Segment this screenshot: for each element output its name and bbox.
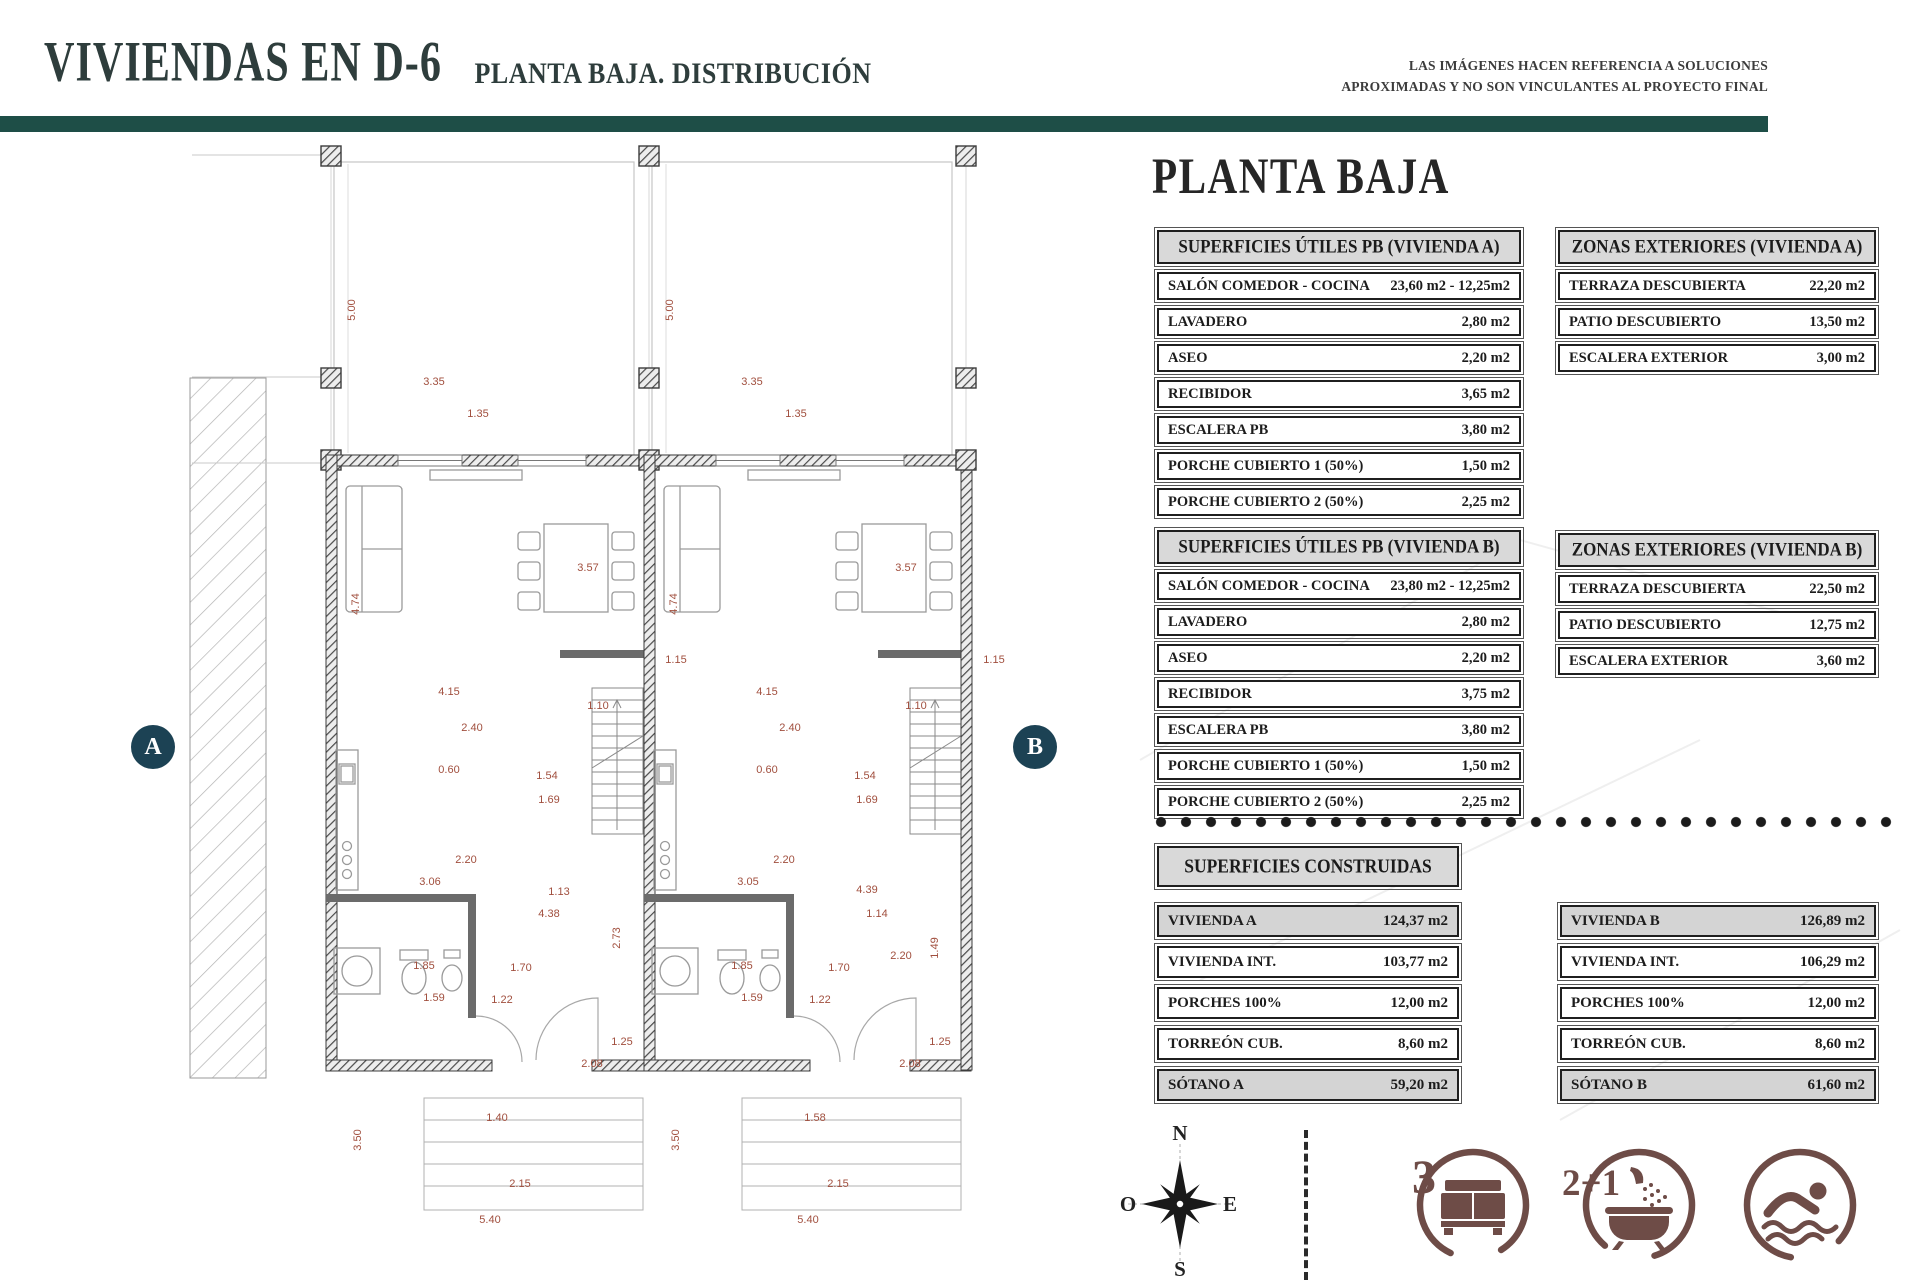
header: VIVIENDAS EN D-6 PLANTA BAJA. DISTRIBUCI… [44, 44, 872, 95]
table-header: ZONAS EXTERIORES (VIVIENDA A) [1558, 230, 1876, 264]
row-label: SALÓN COMEDOR - COCINA [1168, 578, 1370, 595]
table-row: LAVADERO2,80 m2 [1157, 308, 1521, 336]
dimension-label: 1.40 [486, 1112, 507, 1124]
row-value: 2,80 m2 [1462, 314, 1510, 331]
row-label: SALÓN COMEDOR - COCINA [1168, 278, 1370, 295]
dimension-label: 4.38 [538, 908, 559, 920]
dimension-label: 1.69 [538, 794, 559, 806]
dimension-label: 2.15 [827, 1178, 848, 1190]
unit-a-badge: A [131, 725, 175, 769]
row-value: 61,60 m2 [1808, 1077, 1866, 1094]
table-zonas-exteriores-b: ZONAS EXTERIORES (VIVIENDA B) TERRAZA DE… [1558, 533, 1876, 675]
table-row: VIVIENDA INT.103,77 m2 [1157, 946, 1459, 978]
table-header: ZONAS EXTERIORES (VIVIENDA B) [1558, 533, 1876, 567]
dimension-label: 0.60 [438, 764, 459, 776]
row-value: 3,00 m2 [1817, 350, 1865, 367]
dimension-label: 1.85 [413, 960, 434, 972]
table-row: PORCHE CUBIERTO 2 (50%)2,25 m2 [1157, 788, 1521, 816]
disclaimer-line-2: APROXIMADAS Y NO SON VINCULANTES AL PROY… [1208, 77, 1768, 98]
table-header: SUPERFICIES CONSTRUIDAS [1157, 846, 1459, 887]
dimension-label: 4.74 [668, 593, 680, 614]
row-value: 3,65 m2 [1462, 386, 1510, 403]
row-label: ESCALERA PB [1168, 722, 1268, 739]
row-value: 1,50 m2 [1462, 758, 1510, 775]
dimension-label: 1.35 [785, 408, 806, 420]
table-row: SÓTANO B61,60 m2 [1560, 1069, 1876, 1101]
dimension-label: 1.54 [536, 770, 557, 782]
row-label: RECIBIDOR [1168, 686, 1252, 703]
page-title: VIVIENDAS EN D-6 [44, 29, 442, 95]
dimension-label: 2.73 [611, 927, 623, 948]
row-label: VIVIENDA INT. [1571, 954, 1679, 971]
row-value: 23,80 m2 - 12,25m2 [1390, 578, 1510, 595]
row-label: PORCHE CUBIERTO 1 (50%) [1168, 458, 1363, 475]
row-value: 103,77 m2 [1383, 954, 1448, 971]
row-value: 2,25 m2 [1462, 794, 1510, 811]
dimension-label: 2.20 [890, 950, 911, 962]
bedroom-count: 3 [1412, 1150, 1436, 1205]
dimension-label: 2.40 [461, 722, 482, 734]
row-value: 3,60 m2 [1817, 653, 1865, 670]
dotted-divider [1155, 816, 1903, 829]
table-row: RECIBIDOR3,75 m2 [1157, 680, 1521, 708]
dimension-label: 3.50 [670, 1129, 682, 1150]
dimension-label: 4.74 [350, 593, 362, 614]
dimension-label: 1.70 [828, 962, 849, 974]
row-value: 126,89 m2 [1800, 913, 1865, 930]
table-row: ASEO2,20 m2 [1157, 344, 1521, 372]
dimension-label: 3.06 [419, 876, 440, 888]
row-value: 59,20 m2 [1391, 1077, 1449, 1094]
table-row: ASEO2,20 m2 [1157, 644, 1521, 672]
row-label: PORCHE CUBIERTO 2 (50%) [1168, 794, 1363, 811]
header-divider-bar [0, 116, 1768, 132]
table-row: TERRAZA DESCUBIERTA22,20 m2 [1558, 272, 1876, 300]
dimension-label: 1.35 [467, 408, 488, 420]
table-row: TORREÓN CUB.8,60 m2 [1560, 1028, 1876, 1060]
dimension-label: 1.10 [905, 700, 926, 712]
row-value: 22,20 m2 [1809, 278, 1865, 295]
table-row: PORCHE CUBIERTO 1 (50%)1,50 m2 [1157, 752, 1521, 780]
row-label: SÓTANO B [1571, 1077, 1647, 1094]
row-value: 2,25 m2 [1462, 494, 1510, 511]
row-value: 3,80 m2 [1462, 722, 1510, 739]
table-row: ESCALERA PB3,80 m2 [1157, 416, 1521, 444]
table-row: VIVIENDA A124,37 m2 [1157, 905, 1459, 937]
row-label: LAVADERO [1168, 614, 1247, 631]
row-label: TORREÓN CUB. [1571, 1036, 1686, 1053]
table-row: SÓTANO A59,20 m2 [1157, 1069, 1459, 1101]
panel-heading: PLANTA BAJA [1152, 148, 1450, 207]
unit-b-badge: B [1013, 725, 1057, 769]
row-value: 1,50 m2 [1462, 458, 1510, 475]
row-label: ASEO [1168, 650, 1208, 667]
row-label: PATIO DESCUBIERTO [1569, 617, 1721, 634]
dimension-label: 1.59 [741, 992, 762, 1004]
table-superficies-utiles-a: SUPERFICIES ÚTILES PB (VIVIENDA A) SALÓN… [1157, 230, 1521, 516]
table-row: PORCHES 100%12,00 m2 [1560, 987, 1876, 1019]
dimension-label: 5.00 [346, 299, 358, 320]
dimension-label: 5.40 [797, 1214, 818, 1226]
row-label: TORREÓN CUB. [1168, 1036, 1283, 1053]
compass-rose: N E S O [1118, 1124, 1242, 1280]
row-value: 106,29 m2 [1800, 954, 1865, 971]
dimension-label: 2.20 [773, 854, 794, 866]
page-subtitle: PLANTA BAJA. DISTRIBUCIÓN [475, 57, 872, 91]
site-hatch-strip [190, 378, 266, 1078]
feature-pool [1742, 1147, 1858, 1263]
table-construidas-vivienda-a: VIVIENDA A124,37 m2 VIVIENDA INT.103,77 … [1157, 896, 1459, 1101]
row-value: 2,20 m2 [1462, 650, 1510, 667]
row-value: 2,80 m2 [1462, 614, 1510, 631]
svg-text:E: E [1223, 1192, 1237, 1216]
row-value: 12,00 m2 [1391, 995, 1449, 1012]
row-label: PORCHE CUBIERTO 1 (50%) [1168, 758, 1363, 775]
dimension-label: 1.22 [809, 994, 830, 1006]
row-label: LAVADERO [1168, 314, 1247, 331]
table-row: TERRAZA DESCUBIERTA22,50 m2 [1558, 575, 1876, 603]
dimension-label: 2.40 [779, 722, 800, 734]
row-value: 3,80 m2 [1462, 422, 1510, 439]
svg-text:S: S [1174, 1257, 1186, 1280]
disclaimer-text: LAS IMÁGENES HACEN REFERENCIA A SOLUCION… [1208, 56, 1768, 98]
row-value: 12,00 m2 [1808, 995, 1866, 1012]
table-row: ESCALERA EXTERIOR3,60 m2 [1558, 647, 1876, 675]
dimension-label: 1.85 [731, 960, 752, 972]
dimension-label: 1.22 [491, 994, 512, 1006]
table-row: RECIBIDOR3,65 m2 [1157, 380, 1521, 408]
dimension-label: 4.15 [756, 686, 777, 698]
disclaimer-line-1: LAS IMÁGENES HACEN REFERENCIA A SOLUCION… [1208, 56, 1768, 77]
dimension-label: 3.57 [895, 562, 916, 574]
table-row: TORREÓN CUB.8,60 m2 [1157, 1028, 1459, 1060]
row-label: ESCALERA EXTERIOR [1569, 653, 1728, 670]
dimension-label: 0.60 [756, 764, 777, 776]
table-row: PORCHE CUBIERTO 1 (50%)1,50 m2 [1157, 452, 1521, 480]
dimension-label: 1.69 [856, 794, 877, 806]
row-value: 2,20 m2 [1462, 350, 1510, 367]
table-superficies-construidas-header: SUPERFICIES CONSTRUIDAS [1157, 846, 1459, 887]
table-row: PATIO DESCUBIERTO13,50 m2 [1558, 308, 1876, 336]
dimension-label: 5.00 [664, 299, 676, 320]
row-value: 22,50 m2 [1809, 581, 1865, 598]
page: 5.003.351.354.743.571.154.151.102.400.60… [0, 0, 1920, 1280]
row-label: TERRAZA DESCUBIERTA [1569, 581, 1746, 598]
table-row: LAVADERO2,80 m2 [1157, 608, 1521, 636]
dimension-label: 5.40 [479, 1214, 500, 1226]
compass-icon: N E S O [1118, 1124, 1242, 1280]
dimension-label: 1.15 [983, 654, 1004, 666]
dimension-label: 1.25 [929, 1036, 950, 1048]
row-label: PORCHES 100% [1168, 995, 1282, 1012]
dimension-label: 4.15 [438, 686, 459, 698]
unit-a-label: A [144, 734, 161, 761]
dimension-label: 1.15 [665, 654, 686, 666]
row-label: RECIBIDOR [1168, 386, 1252, 403]
row-value: 13,50 m2 [1809, 314, 1865, 331]
dimension-label: 2.08 [581, 1058, 602, 1070]
svg-text:N: N [1172, 1124, 1187, 1145]
dimension-label: 1.10 [587, 700, 608, 712]
row-label: VIVIENDA A [1168, 913, 1257, 930]
table-zonas-exteriores-a: ZONAS EXTERIORES (VIVIENDA A) TERRAZA DE… [1558, 230, 1876, 372]
table-row: VIVIENDA INT.106,29 m2 [1560, 946, 1876, 978]
table-row: PORCHES 100%12,00 m2 [1157, 987, 1459, 1019]
dimension-label: 3.35 [423, 376, 444, 388]
dimension-label: 1.25 [611, 1036, 632, 1048]
row-value: 8,60 m2 [1398, 1036, 1448, 1053]
swimmer-icon [1742, 1147, 1858, 1263]
unit-b-label: B [1027, 734, 1043, 761]
row-label: ESCALERA PB [1168, 422, 1268, 439]
dimension-label: 2.15 [509, 1178, 530, 1190]
table-header: SUPERFICIES ÚTILES PB (VIVIENDA A) [1157, 230, 1521, 264]
dimension-label: 3.35 [741, 376, 762, 388]
row-label: TERRAZA DESCUBIERTA [1569, 278, 1746, 295]
table-row: SALÓN COMEDOR - COCINA23,80 m2 - 12,25m2 [1157, 572, 1521, 600]
row-label: VIVIENDA INT. [1168, 954, 1276, 971]
dimension-label: 1.14 [866, 908, 887, 920]
table-row: ESCALERA EXTERIOR3,00 m2 [1558, 344, 1876, 372]
row-value: 124,37 m2 [1383, 913, 1448, 930]
table-construidas-vivienda-b: VIVIENDA B126,89 m2 VIVIENDA INT.106,29 … [1560, 896, 1876, 1101]
dimension-label: 3.50 [352, 1129, 364, 1150]
row-value: 12,75 m2 [1809, 617, 1865, 634]
dimension-label: 1.49 [929, 937, 941, 958]
table-row: PATIO DESCUBIERTO12,75 m2 [1558, 611, 1876, 639]
row-value: 23,60 m2 - 12,25m2 [1390, 278, 1510, 295]
dimension-label: 1.58 [804, 1112, 825, 1124]
table-row: VIVIENDA B126,89 m2 [1560, 905, 1876, 937]
dimension-label: 2.08 [899, 1058, 920, 1070]
table-row: PORCHE CUBIERTO 2 (50%)2,25 m2 [1157, 488, 1521, 516]
table-superficies-utiles-b: SUPERFICIES ÚTILES PB (VIVIENDA B) SALÓN… [1157, 530, 1521, 816]
row-value: 8,60 m2 [1815, 1036, 1865, 1053]
dimension-label: 3.57 [577, 562, 598, 574]
svg-text:O: O [1120, 1192, 1136, 1216]
row-label: PATIO DESCUBIERTO [1569, 314, 1721, 331]
dimension-label: 4.39 [856, 884, 877, 896]
bathroom-count: 2+1 [1562, 1162, 1620, 1205]
row-label: ASEO [1168, 350, 1208, 367]
row-label: SÓTANO A [1168, 1077, 1244, 1094]
footer-dashed-divider [1304, 1130, 1308, 1280]
dimension-label: 1.54 [854, 770, 875, 782]
table-row: SALÓN COMEDOR - COCINA23,60 m2 - 12,25m2 [1157, 272, 1521, 300]
row-label: PORCHE CUBIERTO 2 (50%) [1168, 494, 1363, 511]
row-label: VIVIENDA B [1571, 913, 1660, 930]
dimension-label: 1.13 [548, 886, 569, 898]
table-row: ESCALERA PB3,80 m2 [1157, 716, 1521, 744]
row-label: ESCALERA EXTERIOR [1569, 350, 1728, 367]
dimension-label: 1.59 [423, 992, 444, 1004]
dimension-label: 2.20 [455, 854, 476, 866]
dimension-label: 1.70 [510, 962, 531, 974]
dimension-label: 3.05 [737, 876, 758, 888]
row-label: PORCHES 100% [1571, 995, 1685, 1012]
table-header: SUPERFICIES ÚTILES PB (VIVIENDA B) [1157, 530, 1521, 564]
row-value: 3,75 m2 [1462, 686, 1510, 703]
